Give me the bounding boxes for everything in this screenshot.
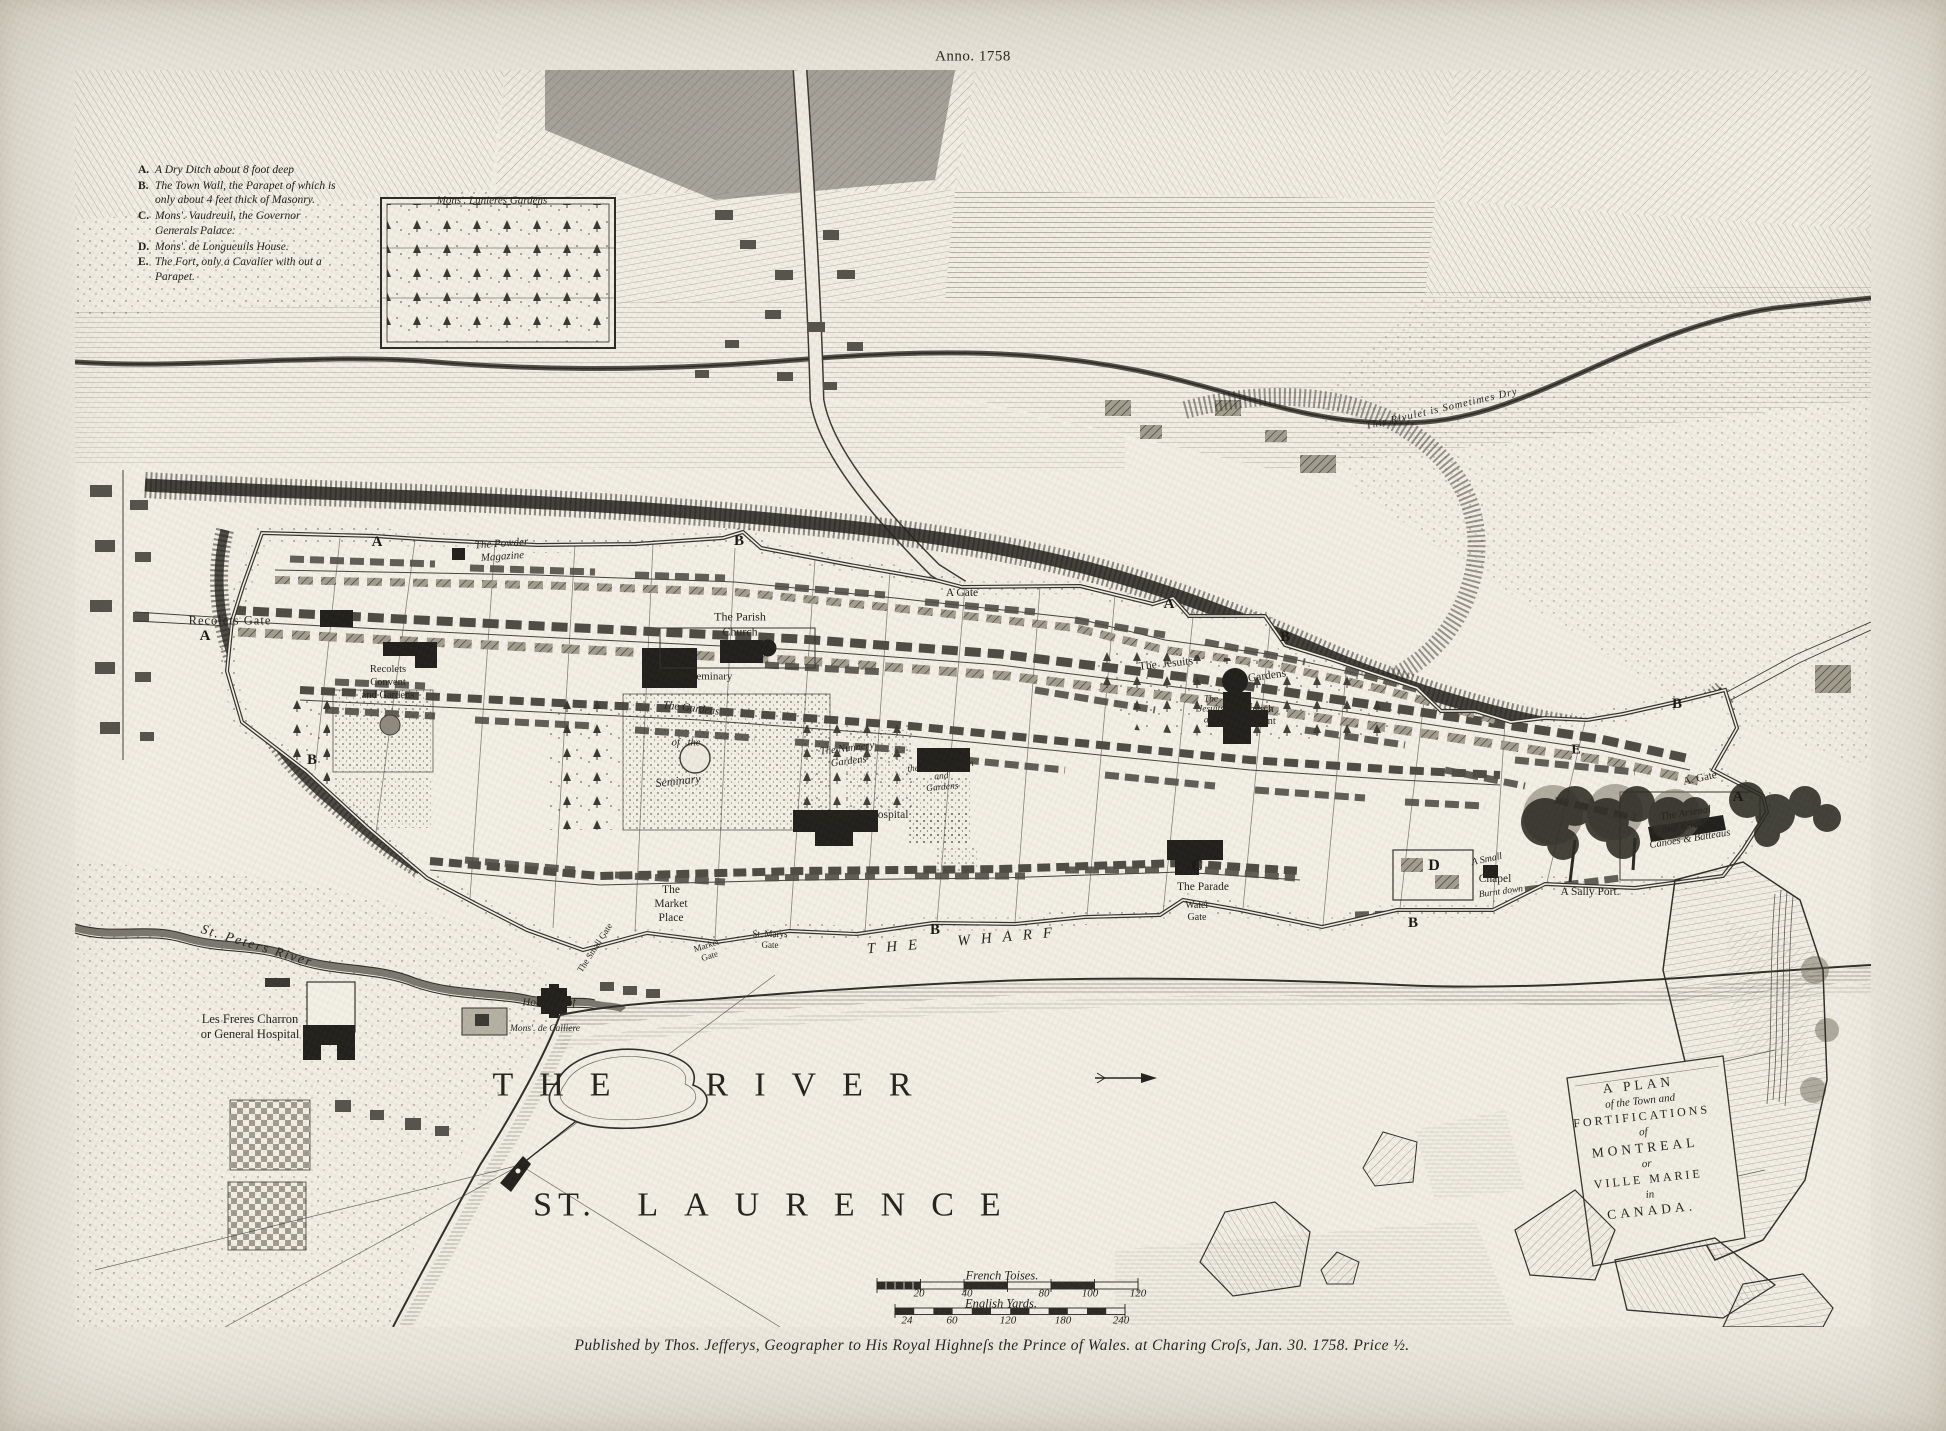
legend-key: C.: [138, 209, 155, 238]
legend-item: C.Mons'. Vaudreuil, the Governor General…: [138, 209, 343, 238]
legend-text: Mons'. Vaudreuil, the Governor Generals …: [155, 209, 343, 238]
legend-key: E.: [138, 255, 155, 284]
legend-item: D.Mons'. de Longueuils House.: [138, 240, 343, 255]
legend-key: A.: [138, 163, 155, 178]
legend: A.A Dry Ditch about 8 foot deep B.The To…: [138, 163, 343, 286]
legend-text: Mons'. de Longueuils House.: [155, 240, 343, 255]
legend-item: E.The Fort, only a Cavalier with out a P…: [138, 255, 343, 284]
scale-french-label: French Toises.: [966, 1269, 1039, 1284]
lunieres-garden: [381, 198, 615, 348]
legend-text: The Fort, only a Cavalier with out a Par…: [155, 255, 343, 284]
map-page: A.A Dry Ditch about 8 foot deep B.The To…: [0, 0, 1946, 1431]
seminary-garden: [550, 692, 830, 830]
nunnery-garden: [800, 725, 913, 815]
legend-key: B.: [138, 179, 155, 208]
legend-item: A.A Dry Ditch about 8 foot deep: [138, 163, 343, 178]
title-cartouche: A PLAN of the Town and FORTIFICATIONS of…: [1543, 1065, 1747, 1230]
publication-imprint: Published by Thos. Jefferys, Geographer …: [575, 1337, 1410, 1355]
legend-item: B.The Town Wall, the Parapet of which is…: [138, 179, 343, 208]
scale-english-label: English Yards.: [965, 1297, 1037, 1312]
legend-text: A Dry Ditch about 8 foot deep: [155, 163, 343, 178]
legend-text: The Town Wall, the Parapet of which is o…: [155, 179, 343, 208]
legend-key: D.: [138, 240, 155, 255]
anno-date: Anno. 1758: [935, 49, 1011, 66]
